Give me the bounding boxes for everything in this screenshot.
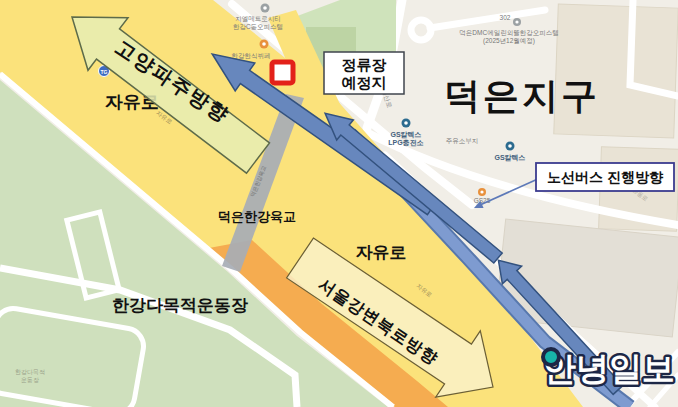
watermark-text: 안녕일보	[543, 350, 675, 387]
building-icon-2-dot	[515, 20, 518, 23]
news-map-image: 덕은한강육교 지엘메트로시티 한강C동오피스텔 한강한식뷔페 302 덕은DMC…	[0, 0, 678, 407]
district-title: 덕은지구	[444, 75, 600, 116]
restaurant-icon-dot	[262, 42, 266, 46]
map-canvas: 덕은한강육교 지엘메트로시티 한강C동오피스텔 한강한식뷔페 302 덕은DMC…	[0, 0, 678, 407]
stop-label-box: 정류장 예정지	[324, 52, 404, 94]
watermark-logo-circle	[543, 349, 559, 365]
building-icon-dot	[263, 6, 267, 10]
stadium-small-label-2: 운동장	[21, 377, 39, 383]
watermark-logo: 안녕일보	[543, 349, 675, 387]
tollgate-icon-label: TG	[101, 69, 108, 75]
gs-lpg-label-1: GS칼텍스	[390, 131, 421, 139]
stop-label-line2: 예정지	[342, 74, 387, 91]
gas-site-label: 주유소부지	[446, 137, 479, 144]
gas-station-icon-dot	[404, 121, 408, 125]
stadium-label: 한강다목적운동장	[112, 296, 248, 315]
officetel-c-label-1: 지엘메트로시티	[235, 15, 281, 22]
stop-label-line1: 정류장	[342, 56, 387, 73]
gs-lpg-label-2: LPG충전소	[388, 139, 423, 147]
building-number-label: 302	[500, 14, 511, 21]
stadium-small-label-1: 한강다목적	[15, 369, 45, 375]
overpass-label: 덕은한강육교	[218, 209, 296, 224]
bus-direction-label: 노선버스 진행방향	[547, 169, 664, 185]
officetel-dmc-label-2: (2025년12월예정)	[483, 37, 535, 45]
jayuro-label-center: 자유로	[356, 243, 407, 262]
bus-direction-label-box: 노선버스 진행방향	[536, 163, 674, 191]
convenience-store-icon-dot	[480, 190, 483, 193]
officetel-dmc-label-1: 덕은DMC에일린의뜰한강오피스텔	[459, 29, 558, 37]
gs-label: GS칼텍스	[494, 154, 525, 162]
officetel-c-label-2: 한강C동오피스텔	[233, 23, 283, 31]
stop-marker	[272, 62, 293, 83]
gas-station-icon-2-dot	[508, 144, 512, 148]
